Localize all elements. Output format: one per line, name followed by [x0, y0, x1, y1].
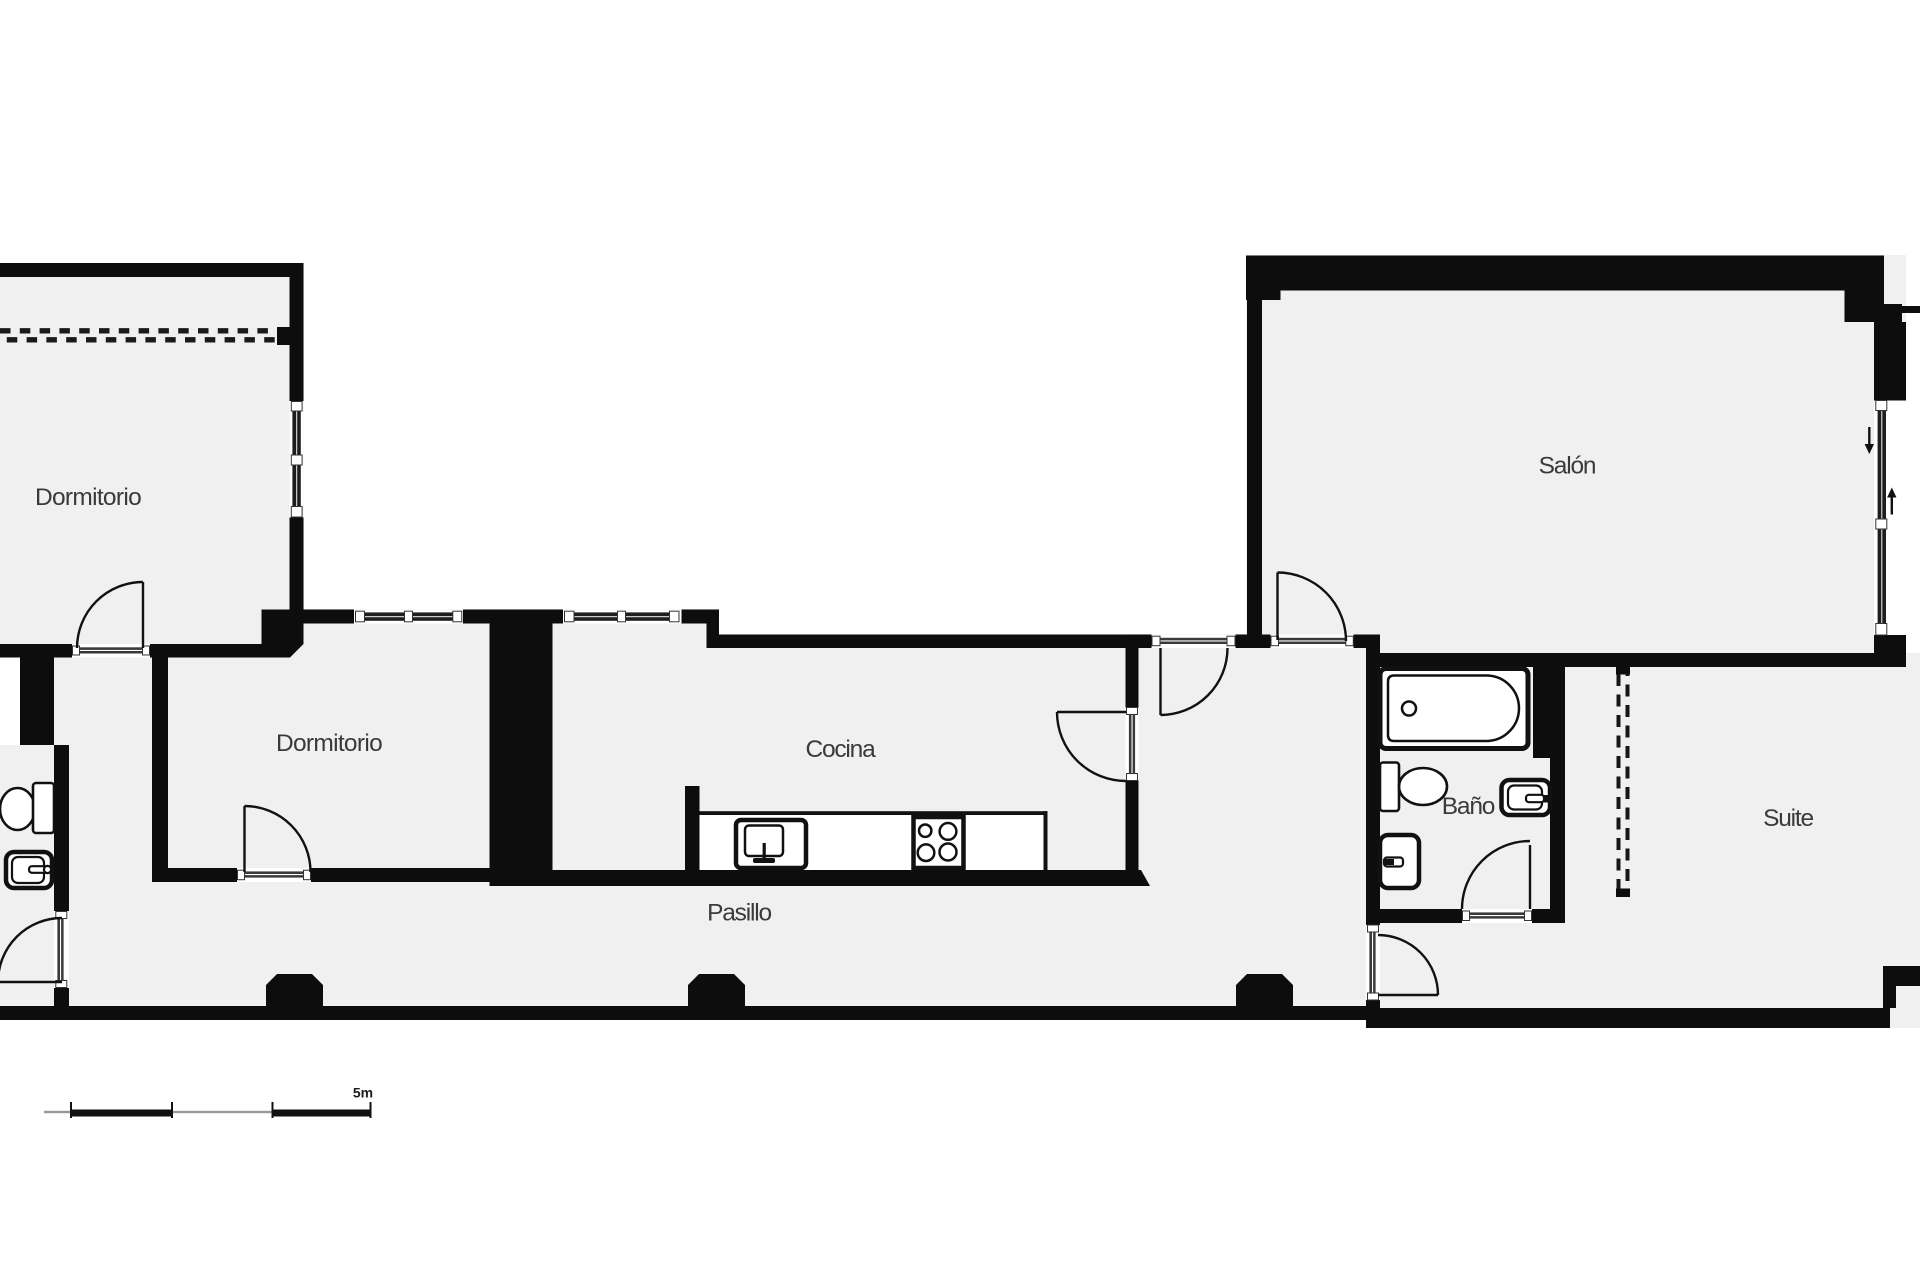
- svg-text:Pasillo: Pasillo: [707, 900, 771, 927]
- svg-text:Salón: Salón: [1539, 453, 1596, 480]
- svg-text:Baño: Baño: [1442, 793, 1495, 820]
- svg-text:Cocina: Cocina: [805, 736, 876, 763]
- svg-text:5m: 5m: [353, 1085, 373, 1101]
- svg-text:Dormitorio: Dormitorio: [276, 730, 382, 757]
- svg-text:Suite: Suite: [1763, 805, 1813, 832]
- svg-text:Dormitorio: Dormitorio: [35, 484, 141, 511]
